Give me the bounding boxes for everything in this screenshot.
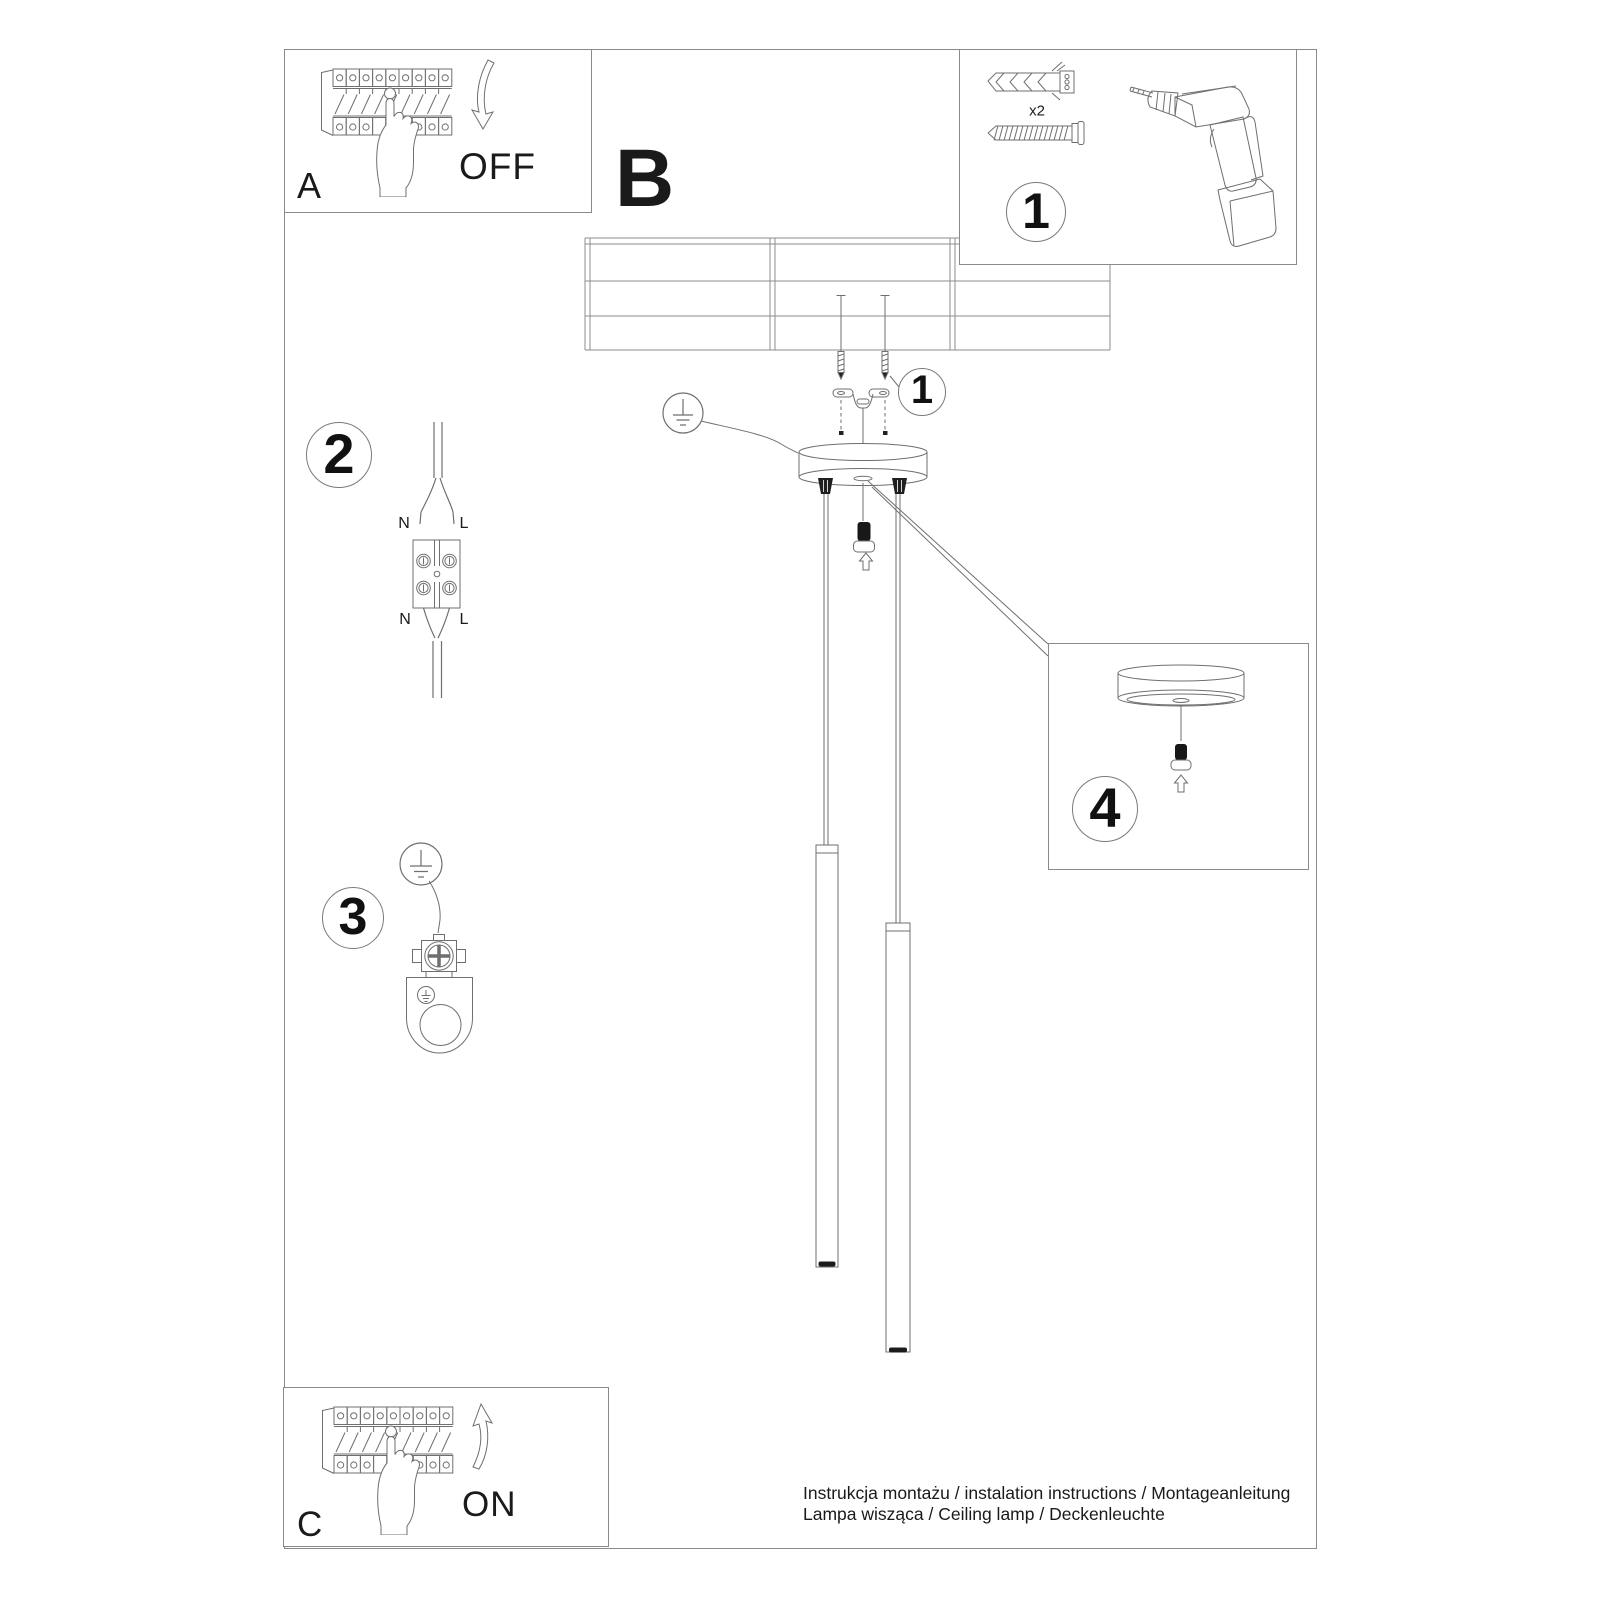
- canopy-detail-icon: [1118, 665, 1244, 741]
- off-label: OFF: [459, 148, 536, 185]
- wire-label-l-bottom: L: [460, 611, 469, 629]
- step-4-badge: 4: [1072, 776, 1138, 842]
- circuit-breaker-icon: [323, 1407, 453, 1535]
- grub-screw-icon: [1171, 744, 1191, 792]
- footer-line-1: Instrukcja montażu / instalation instruc…: [803, 1483, 1290, 1504]
- wire-label-l-top: L: [460, 515, 469, 533]
- panel-a-letter: A: [297, 168, 321, 204]
- step-2-badge: 2: [306, 422, 372, 488]
- instruction-sheet: B A OFF: [0, 0, 1600, 1600]
- on-label: ON: [462, 1487, 517, 1522]
- drill-icon: [1130, 86, 1276, 246]
- panel-power-off: A OFF: [284, 49, 592, 213]
- step-1-badge: 1: [1006, 182, 1066, 242]
- up-arrow-icon: [1175, 775, 1188, 792]
- wire-label-n-top: N: [398, 515, 410, 533]
- panel-canopy-detail: 4: [1048, 643, 1309, 870]
- section-b-label: B: [615, 138, 674, 220]
- step-3-badge: 3: [322, 887, 384, 949]
- step-1-callout: 1: [898, 368, 946, 416]
- arrow-up-icon: [473, 1404, 492, 1469]
- panel-power-on: C ON: [283, 1387, 609, 1547]
- wall-plug-icon: [988, 62, 1074, 100]
- footer-line-2: Lampa wisząca / Ceiling lamp / Deckenleu…: [803, 1504, 1290, 1525]
- circuit-breaker-icon: [322, 69, 452, 197]
- footer-caption: Instrukcja montażu / instalation instruc…: [803, 1483, 1290, 1525]
- panel-c-letter: C: [297, 1507, 322, 1542]
- screw-icon: [988, 122, 1084, 145]
- wire-label-n-bottom: N: [399, 611, 411, 629]
- arrow-down-icon: [472, 60, 494, 129]
- quantity-label: x2: [1029, 103, 1045, 120]
- panel-tools: x2 1: [959, 49, 1297, 265]
